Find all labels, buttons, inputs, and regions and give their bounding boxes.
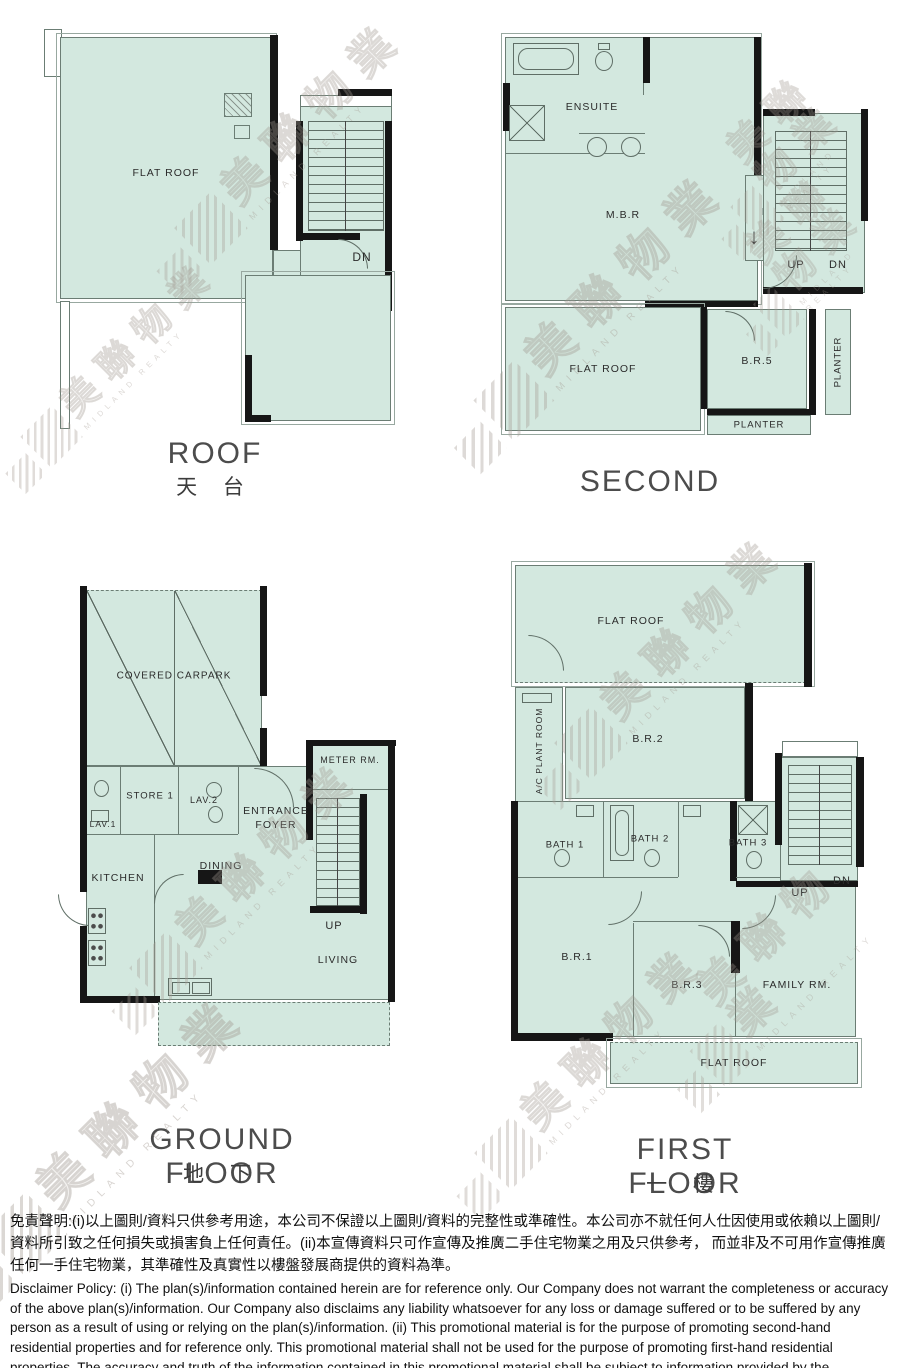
second-wall-br5-right xyxy=(809,309,816,415)
ground-wall-carpark-left xyxy=(80,586,87,770)
room-label-store1: STORE 1 xyxy=(126,791,173,802)
room-label-flat-roof-top: FLAT ROOF xyxy=(598,615,665,627)
roof-parapet-arm xyxy=(60,301,70,429)
first-wall-stair-right xyxy=(856,757,864,867)
plan-subtitle-ground: 地 下 xyxy=(122,1158,322,1188)
second-wall-ensuite xyxy=(643,37,650,83)
ground-wall-outer-left2 xyxy=(80,926,87,1003)
disclaimer-block: 免責聲明:(i)以上圖則/資料只供參考用途，本公司不保證以上圖則/資料的完整性或… xyxy=(10,1212,892,1368)
roof-wall-stair-left xyxy=(296,121,303,241)
plan-subtitle-first: 一 樓 xyxy=(585,1168,785,1198)
room-label-mbr: M.B.R xyxy=(606,209,640,221)
floor-plan-roof: FLAT ROOF DN ROOF 天 台 xyxy=(38,25,393,525)
first-wall-br2-right xyxy=(745,683,753,805)
room-label-ac-plant-room: A/C PLANT ROOM xyxy=(534,708,544,795)
first-wall-br3-top xyxy=(633,921,735,922)
second-wall-stair-right xyxy=(861,109,868,221)
plan-subtitle-roof: 天 台 xyxy=(135,471,295,501)
roof-vent xyxy=(234,125,250,139)
ground-wall-kitchen xyxy=(154,834,155,1000)
room-label-ensuite: ENSUITE xyxy=(566,101,619,113)
room-label-bath3: BATH 3 xyxy=(729,838,768,849)
room-label-entrance-foyer: ENTRANCE FOYER xyxy=(231,804,321,832)
ground-wall-stair-right xyxy=(360,794,367,914)
ground-staircase xyxy=(316,798,360,906)
stove-icon xyxy=(88,908,106,934)
first-wall-bath-bottom xyxy=(515,877,678,878)
room-label-living: LIVING xyxy=(318,954,358,966)
first-wall-outer-left xyxy=(511,801,518,1037)
roof-wall-ext-bottom xyxy=(245,415,271,422)
toilet-icon xyxy=(208,806,223,823)
roof-wall-landing xyxy=(300,233,360,240)
second-staircase xyxy=(775,131,847,251)
room-label-br5: B.R.5 xyxy=(741,355,772,367)
ground-side-door-arc xyxy=(58,894,90,926)
floor-plan-first: FLAT ROOF A/C PLANT ROOM B.R.2 BATH 1 BA… xyxy=(498,555,876,1215)
basin-icon xyxy=(587,137,607,157)
basin-icon xyxy=(576,805,594,817)
room-label-family-rm: FAMILY RM. xyxy=(763,979,832,991)
ground-wall-carpark-right xyxy=(260,586,267,696)
ground-wall-lav1 xyxy=(120,766,121,834)
room-label-covered-carpark: COVERED CARPARK xyxy=(117,671,232,682)
second-stair-rail xyxy=(810,131,811,251)
shower-icon xyxy=(738,805,768,835)
plan-title-second: SECOND xyxy=(550,465,750,499)
floor-plan-second: ENSUITE M.B.R FLAT ROOF ↓ UP DN FLAT ROO… xyxy=(495,25,875,525)
second-wall-right xyxy=(754,37,761,179)
room-label-dn: DN xyxy=(833,875,851,887)
first-wall-bath2 xyxy=(678,801,679,877)
plan-title-roof: ROOF xyxy=(135,437,295,471)
floor-plan-ground: COVERED CARPARK METER RM. UP xyxy=(58,578,398,1218)
room-label-bath2: BATH 2 xyxy=(631,834,670,845)
first-wall-outer-bottom xyxy=(511,1033,613,1041)
ground-wall-dining-pier xyxy=(198,870,222,884)
ground-wall-outer-left1 xyxy=(80,766,87,892)
room-label-br1: B.R.1 xyxy=(561,951,592,963)
room-label-br3: B.R.3 xyxy=(671,979,702,991)
roof-staircase xyxy=(308,121,384,231)
toilet-icon xyxy=(595,51,613,71)
room-label-kitchen: KITCHEN xyxy=(91,872,144,884)
second-wall-stair-bottom xyxy=(763,287,863,294)
toilet-tank-icon xyxy=(598,43,610,50)
sink-icon xyxy=(168,978,212,996)
room-label-up: UP xyxy=(787,259,804,271)
roof-wall-ext-left xyxy=(245,355,252,421)
ground-wall-outer-right xyxy=(388,740,395,1002)
ground-wall-meter-top xyxy=(306,740,396,746)
room-label-br2: B.R.2 xyxy=(632,733,663,745)
first-wall-stair-left xyxy=(775,753,782,845)
ground-wall-row-bottom xyxy=(86,834,238,835)
second-main-area xyxy=(505,37,758,301)
room-label-lav2: LAV.2 xyxy=(190,795,218,805)
stove-icon xyxy=(88,940,106,966)
disclaimer-chinese: 免責聲明:(i)以上圖則/資料只供參考用途，本公司不保證以上圖則/資料的完整性或… xyxy=(10,1212,892,1277)
ground-meter-room xyxy=(310,744,390,790)
first-wall-bath1 xyxy=(603,801,604,877)
first-wall-flatroof-right xyxy=(804,563,812,687)
ground-stair-rail xyxy=(337,798,338,906)
first-wall-br3-right xyxy=(731,921,740,973)
second-wall-br5-left xyxy=(701,307,707,409)
room-label-dn: DN xyxy=(352,250,371,264)
toilet-icon xyxy=(554,849,570,867)
down-arrow-icon: ↓ xyxy=(749,226,760,248)
room-label-planter-bottom: PLANTER xyxy=(734,420,785,431)
second-vanity-counter xyxy=(579,133,645,134)
first-wall-br1-br3 xyxy=(633,923,634,1037)
roof-stair-rail xyxy=(345,121,346,231)
room-label-meter-rm: METER RM. xyxy=(320,755,380,765)
bathtub-icon xyxy=(513,43,579,75)
ground-terrace xyxy=(158,1002,390,1046)
roof-skylight xyxy=(224,93,252,117)
roof-wall-right xyxy=(270,35,278,250)
room-label-flat-roof-large: FLAT ROOF xyxy=(570,363,637,375)
ground-wall-store xyxy=(178,766,179,834)
room-label-bath1: BATH 1 xyxy=(546,840,585,851)
ac-ledge xyxy=(522,693,552,703)
shower-icon xyxy=(509,105,545,141)
first-stair-hatch xyxy=(782,741,858,757)
first-wall-family-left xyxy=(735,973,736,1037)
roof-lower-flat-roof xyxy=(245,275,391,421)
ground-wall-stair-bottom xyxy=(310,906,366,913)
room-label-flat-roof-bottom: FLAT ROOF xyxy=(701,1057,768,1069)
room-label-dn: DN xyxy=(829,259,847,271)
room-label-dining: DINING xyxy=(200,860,243,872)
room-label-lav1: LAV.1 xyxy=(90,819,117,829)
basin-icon xyxy=(621,137,641,157)
roof-wall-stair-top xyxy=(338,89,392,96)
first-staircase xyxy=(788,765,852,865)
ground-wall-carpark-right2 xyxy=(260,728,267,770)
toilet-icon xyxy=(746,851,762,869)
toilet-icon xyxy=(94,780,109,797)
room-label-flat-roof: FLAT ROOF xyxy=(133,167,200,179)
first-stair-rail xyxy=(819,765,820,865)
disclaimer-english: Disclaimer Policy: (i) The plan(s)/infor… xyxy=(10,1279,892,1368)
room-label-up: UP xyxy=(791,887,808,899)
room-label-planter-right: PLANTER xyxy=(833,337,844,388)
toilet-icon xyxy=(644,849,660,867)
ground-wall-outer-bottom xyxy=(80,996,160,1003)
first-wall-bath3-bottom xyxy=(736,877,780,878)
floor-plan-page: FLAT ROOF DN ROOF 天 台 ENSUITE M.B.R FLAT… xyxy=(0,0,900,1368)
room-label-up: UP xyxy=(325,920,342,932)
basin-icon xyxy=(683,805,701,817)
second-wall-stair-top xyxy=(763,109,815,116)
roof-stair-hatch xyxy=(300,95,392,107)
